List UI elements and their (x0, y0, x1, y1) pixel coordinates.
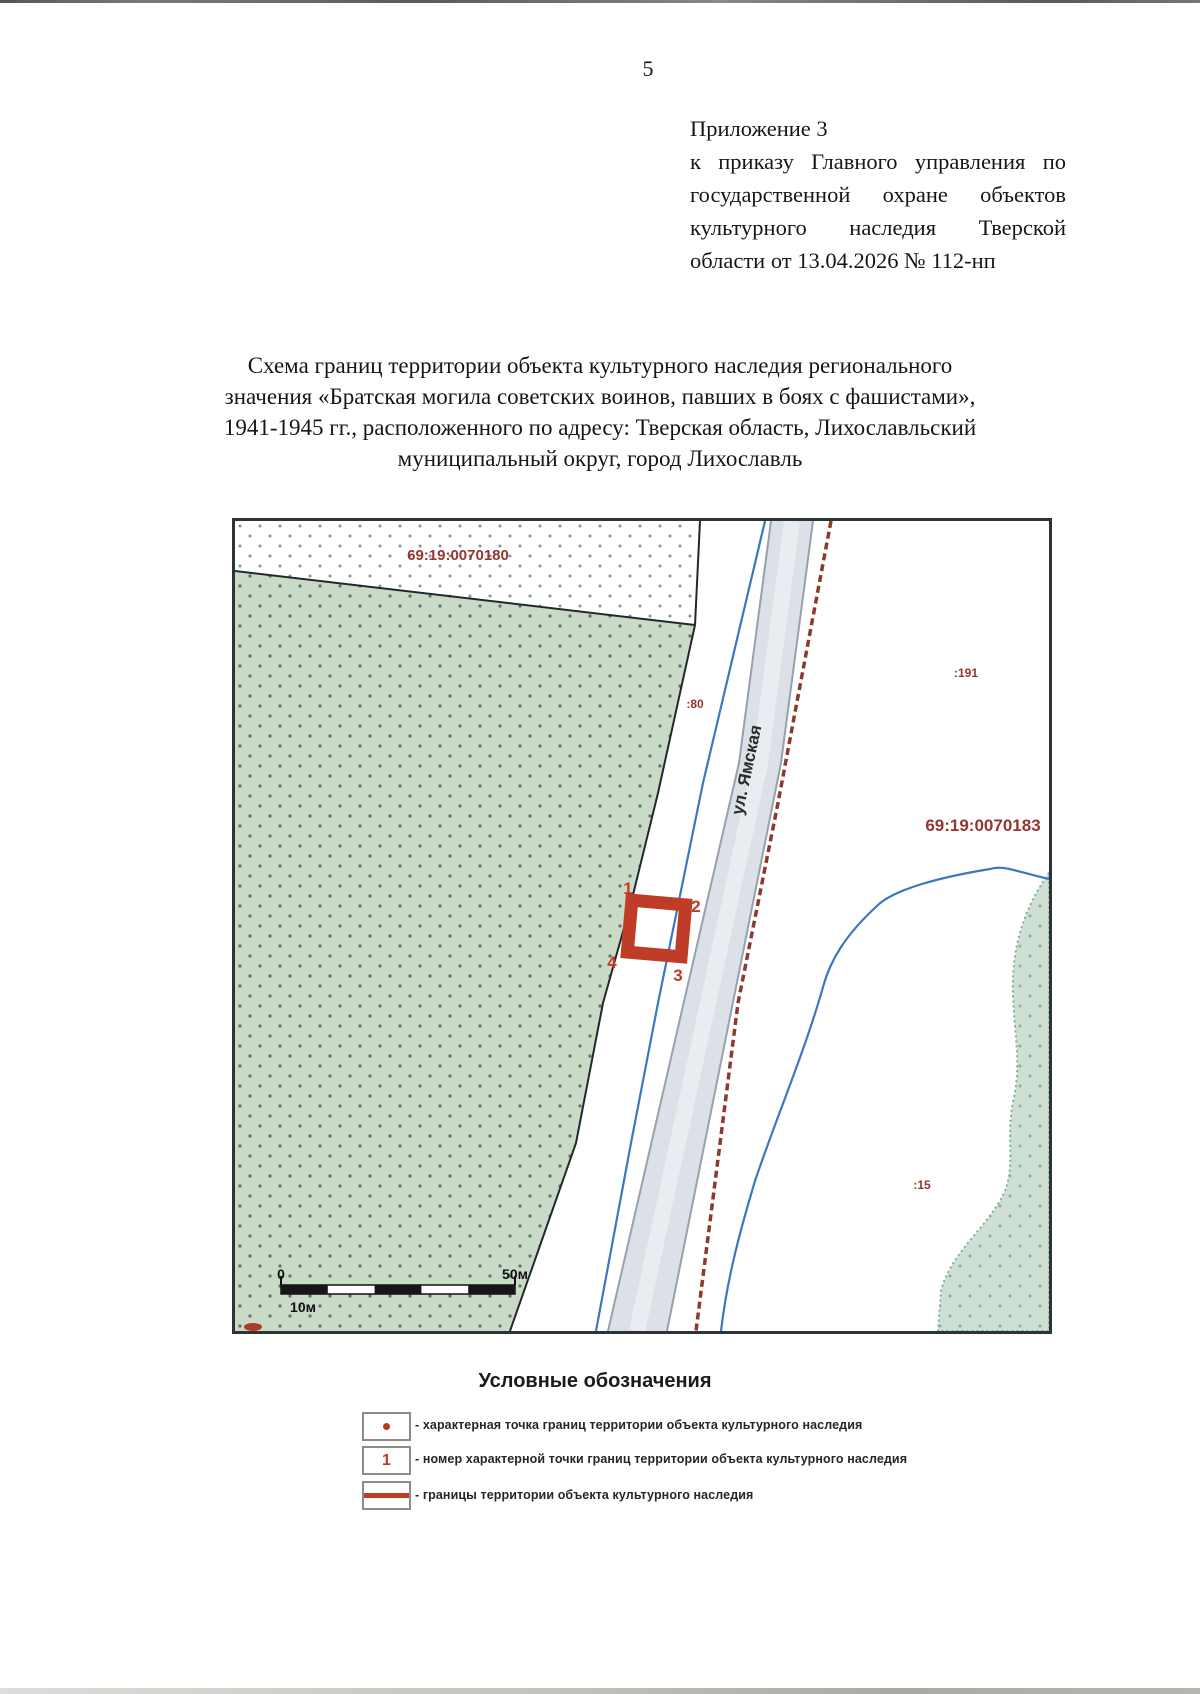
scan-artifact-bottom-edge (0, 1688, 1200, 1694)
parcel-label-80: :80 (686, 697, 704, 711)
legend-symbol-boundary (362, 1481, 411, 1510)
boundary-point-label-2: 2 (691, 897, 700, 916)
title-line: 1941-1945 гг., расположенного по адресу:… (100, 412, 1100, 443)
scale-bar-segment (468, 1285, 515, 1294)
legend-item-text: - характерная точка границ территории об… (415, 1418, 862, 1432)
parcel-label-15: :15 (913, 1178, 931, 1192)
corner-red-mark (244, 1323, 262, 1331)
legend-item-text: - номер характерной точки границ террито… (415, 1452, 907, 1466)
scale-bar-segment (281, 1285, 328, 1294)
boundary-point-label-1: 1 (623, 879, 632, 898)
boundary-scheme-map: 1 2 3 4 69:19:0070180 69:19:0070183 :80 … (232, 518, 1052, 1334)
page-number: 5 (628, 56, 668, 82)
appendix-line: культурного наследия Тверской (690, 211, 1066, 244)
point-number-icon: 1 (382, 1452, 391, 1470)
title-line: муниципальный округ, город Лихославль (100, 443, 1100, 474)
legend-symbol-number: 1 (362, 1446, 411, 1475)
cadastral-label-0070183: 69:19:0070183 (925, 816, 1040, 835)
scan-artifact-top-edge (0, 0, 1200, 3)
scale-bar-segment (375, 1285, 422, 1294)
legend-symbol-point (362, 1412, 411, 1441)
document-title: Схема границ территории объекта культурн… (100, 350, 1100, 474)
scale-label-zero: 0 (277, 1266, 285, 1282)
appendix-line: государственной охране объектов (690, 178, 1066, 211)
title-line: Схема границ территории объекта культурн… (100, 350, 1100, 381)
characteristic-point-icon (383, 1423, 390, 1430)
document-page: 5 Приложение 3 к приказу Главного управл… (0, 0, 1200, 1694)
cadastral-label-0070180: 69:19:0070180 (407, 547, 509, 564)
scale-label-fifty: 50м (502, 1266, 528, 1282)
legend-item-text: - границы территории объекта культурного… (415, 1488, 753, 1502)
parcel-label-191: :191 (954, 666, 978, 680)
boundary-point-label-4: 4 (607, 953, 617, 972)
appendix-line: области от 13.04.2026 № 112-нп (690, 244, 1066, 277)
boundary-line-icon (364, 1493, 409, 1498)
legend-title: Условные обозначения (0, 1370, 1190, 1393)
appendix-line: к приказу Главного управления по (690, 145, 1066, 178)
boundary-point-label-3: 3 (673, 966, 682, 985)
appendix-header: Приложение 3 к приказу Главного управлен… (690, 112, 1066, 277)
title-line: значения «Братская могила советских воин… (100, 381, 1100, 412)
scale-label-ten: 10м (290, 1299, 316, 1315)
appendix-line: Приложение 3 (690, 112, 1066, 145)
